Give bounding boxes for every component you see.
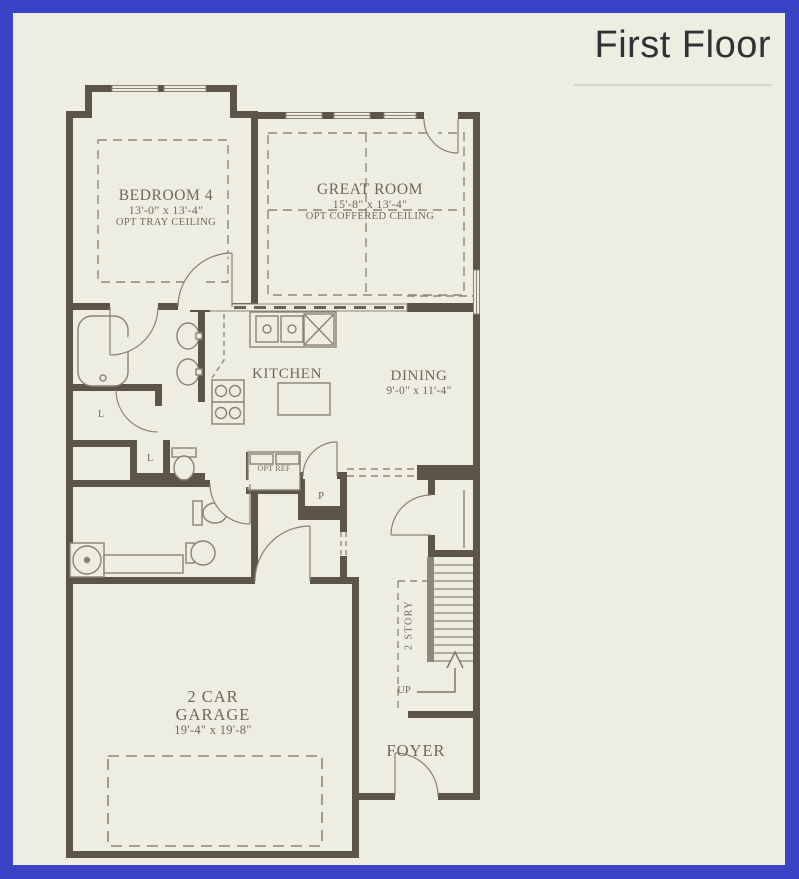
- up-label: UP: [397, 685, 410, 697]
- kitchen-halfwall: [210, 304, 407, 311]
- room-note: OPT TRAY CEILING: [116, 217, 216, 229]
- room-note: OPT COFFERED CEILING: [306, 211, 435, 223]
- staircase: [417, 557, 473, 692]
- window: [164, 86, 206, 92]
- room-dims: 19'-4" x 19'-8": [174, 724, 252, 738]
- two-story-label: 2 STORY: [404, 600, 415, 650]
- door-arc: [116, 390, 158, 432]
- window: [384, 113, 416, 119]
- pantry-label: P: [318, 490, 324, 502]
- corner-cabinet-icon: [304, 314, 334, 345]
- foyer-label: FOYER: [386, 742, 445, 760]
- pedestal-sink-icon: [186, 541, 215, 565]
- room-dims: 13'-0" x 13'-4": [116, 204, 216, 217]
- great-room-label: GREAT ROOM 15'-8" x 13'-4" OPT COFFERED …: [306, 181, 435, 223]
- garage-door-outline: [108, 756, 322, 846]
- room-name: GARAGE: [174, 706, 252, 724]
- linen-label: L: [147, 453, 153, 464]
- room-name: GREAT ROOM: [306, 181, 435, 198]
- opt-ref-label: OPT REF: [257, 465, 290, 474]
- title-underline: [574, 84, 772, 86]
- door-arc: [255, 526, 310, 584]
- room-name: 2 CAR: [174, 688, 252, 706]
- room-name: DINING: [386, 368, 451, 385]
- door-arc: [303, 442, 337, 479]
- room-dims: 15'-8" x 13'-4": [306, 198, 435, 211]
- kitchen-island: [278, 383, 330, 415]
- kitchen-cabinet-dash: [212, 314, 224, 378]
- dining-label: DINING 9'-0" x 11'-4": [386, 368, 451, 397]
- garage-label: 2 CAR GARAGE 19'-4" x 19'-8": [174, 688, 252, 738]
- up-arrow-icon: [417, 652, 463, 692]
- linen-label: L: [98, 409, 104, 420]
- kitchen-label: KITCHEN: [252, 366, 322, 383]
- bedroom4-label: BEDROOM 4 13'-0" x 13'-4" OPT TRAY CEILI…: [116, 187, 216, 229]
- room-dims: 9'-0" x 11'-4": [386, 385, 451, 398]
- utility-counter: [104, 555, 183, 573]
- blueprint-frame: First Floor BEDROOM 4 13'-0" x 13'-4" OP…: [0, 0, 799, 879]
- window: [334, 113, 370, 119]
- window: [474, 270, 480, 314]
- door-arc: [391, 495, 435, 535]
- window: [286, 113, 322, 119]
- room-name: BEDROOM 4: [116, 187, 216, 204]
- toilet-icon: [172, 448, 196, 480]
- window: [112, 86, 158, 92]
- stove-icon: [212, 380, 244, 424]
- page-title: First Floor: [595, 24, 772, 67]
- water-heater-icon: [70, 543, 104, 577]
